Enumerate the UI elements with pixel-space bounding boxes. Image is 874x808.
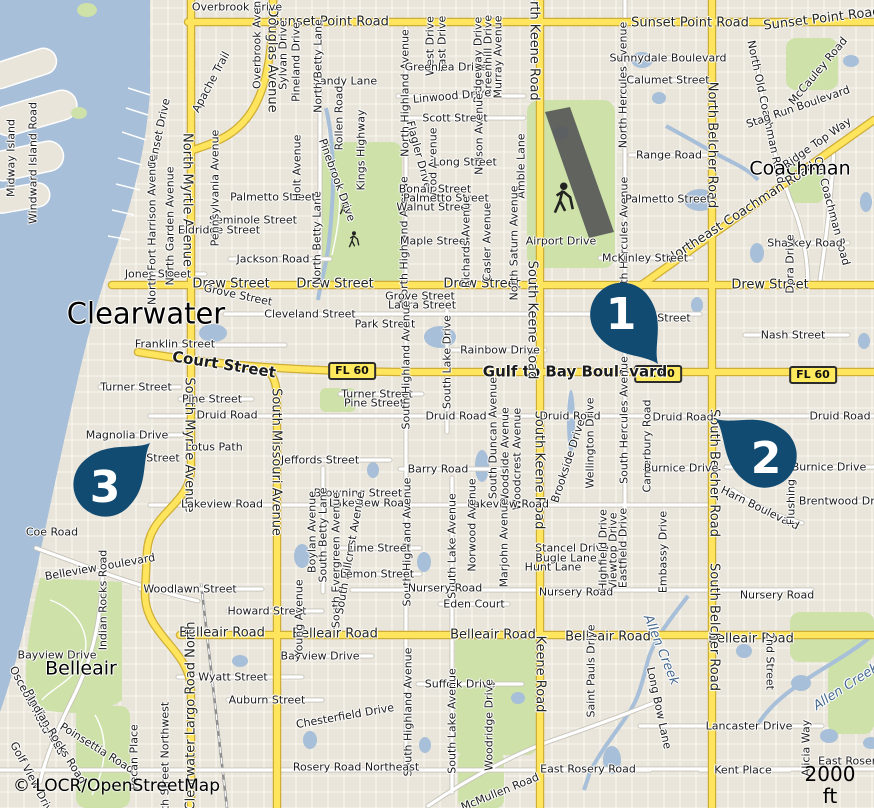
marker-number-1: 1 (606, 289, 637, 340)
marker-layer: 123 (0, 0, 874, 808)
marker-1[interactable]: 1 (577, 270, 683, 383)
marker-2[interactable]: 2 (697, 393, 810, 500)
marker-number-2: 2 (751, 433, 782, 484)
marker-number-3: 3 (90, 462, 121, 513)
scale-label: 2000 ft (795, 763, 865, 807)
map-attribution: © LOCR/OpenStreetMap (13, 776, 220, 796)
scale-bar: 2000 ft (795, 763, 865, 808)
map-canvas[interactable]: FL 60FL 60FL 60 Sunset Point RoadSunset … (0, 0, 874, 808)
marker-3[interactable]: 3 (60, 420, 172, 530)
